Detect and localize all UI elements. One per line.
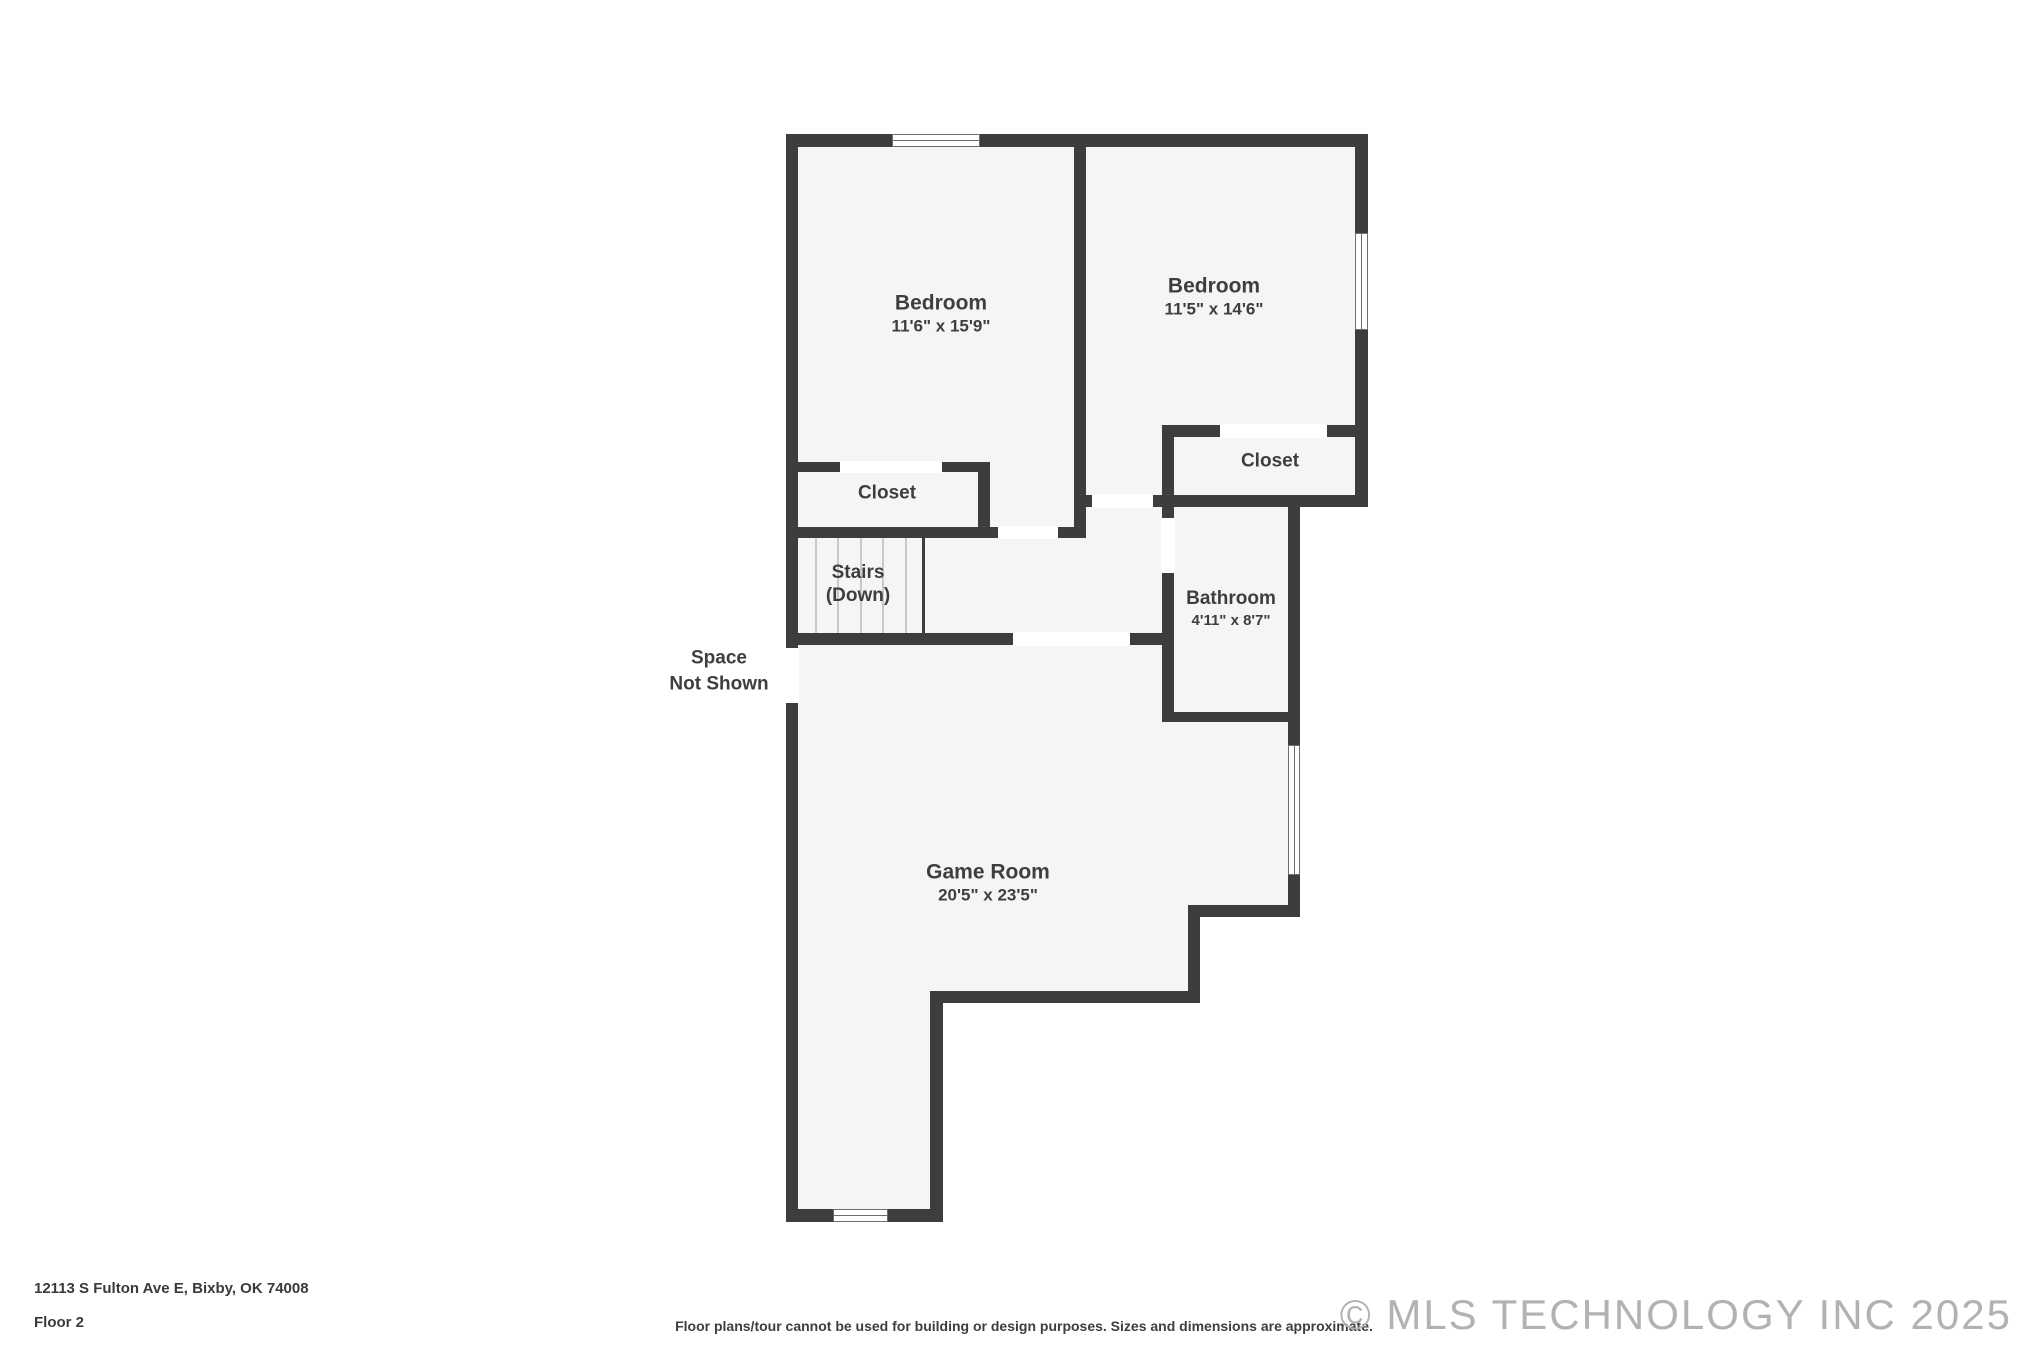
- window-marker: [1288, 745, 1300, 875]
- wall-segment: [930, 991, 1200, 1003]
- room-label-bedroom-right: Bedroom 11'5" x 14'6": [1165, 273, 1264, 320]
- wall-segment: [930, 991, 943, 1222]
- room-name: Closet: [1241, 451, 1299, 474]
- label-space-not-shown: Space Not Shown: [669, 645, 768, 696]
- room-name: Game Room: [926, 859, 1050, 884]
- floor-number-label: Floor 2: [34, 1314, 84, 1331]
- door-opening-bathroom: [1161, 518, 1175, 573]
- door-opening-closet-right: [1220, 424, 1327, 438]
- space-not-shown-line1: Space: [669, 645, 768, 671]
- floor-plan-page: Bedroom 11'6" x 15'9" Bedroom 11'5" x 14…: [0, 0, 2036, 1357]
- wall-segment: [786, 134, 798, 648]
- room-name: Bathroom: [1186, 588, 1276, 611]
- room-qualifier: (Down): [826, 585, 890, 608]
- room-dims: 11'5" x 14'6": [1165, 299, 1264, 321]
- room-label-bedroom-left: Bedroom 11'6" x 15'9": [892, 290, 991, 337]
- room-dims: 4'11" x 8'7": [1186, 611, 1276, 631]
- room-label-closet-right: Closet: [1241, 451, 1299, 474]
- room-label-closet-left: Closet: [858, 483, 916, 506]
- door-opening-gameroom: [1013, 632, 1130, 646]
- door-opening-bedroom-left: [998, 526, 1058, 539]
- wall-segment: [786, 703, 798, 1222]
- wall-segment: [1162, 712, 1300, 722]
- stair-edge-line: [922, 538, 925, 633]
- space-not-shown-line2: Not Shown: [669, 671, 768, 697]
- room-label-bathroom: Bathroom 4'11" x 8'7": [1186, 588, 1276, 630]
- room-dims: 11'6" x 15'9": [892, 316, 991, 338]
- room-label-game-room: Game Room 20'5" x 23'5": [926, 859, 1050, 906]
- copyright-watermark: © MLS TECHNOLOGY INC 2025: [1340, 1291, 2012, 1339]
- room-name: Bedroom: [892, 290, 991, 315]
- wall-segment: [1188, 905, 1200, 1003]
- disclaimer-text: Floor plans/tour cannot be used for buil…: [675, 1318, 1373, 1334]
- floor-area-gameroom-mid: [792, 905, 1192, 1000]
- property-address: 12113 S Fulton Ave E, Bixby, OK 74008: [34, 1280, 309, 1297]
- window-marker: [1355, 233, 1368, 330]
- door-opening-bedroom-right: [1092, 494, 1153, 508]
- wall-segment: [1188, 905, 1300, 917]
- stair-tread: [815, 538, 817, 633]
- opening-space-not-shown: [785, 648, 799, 703]
- wall-segment: [1162, 425, 1174, 722]
- stair-tread: [905, 538, 907, 633]
- door-opening-closet-left: [840, 461, 942, 473]
- room-label-stairs: Stairs (Down): [826, 562, 890, 608]
- floor-area-gameroom-lower: [792, 995, 938, 1216]
- window-marker: [833, 1209, 888, 1222]
- room-dims: 20'5" x 23'5": [926, 885, 1050, 907]
- wall-segment: [1162, 495, 1368, 507]
- room-name: Stairs: [826, 562, 890, 585]
- room-name: Bedroom: [1165, 273, 1264, 298]
- window-marker: [892, 134, 980, 147]
- room-name: Closet: [858, 483, 916, 506]
- wall-segment: [1074, 134, 1086, 537]
